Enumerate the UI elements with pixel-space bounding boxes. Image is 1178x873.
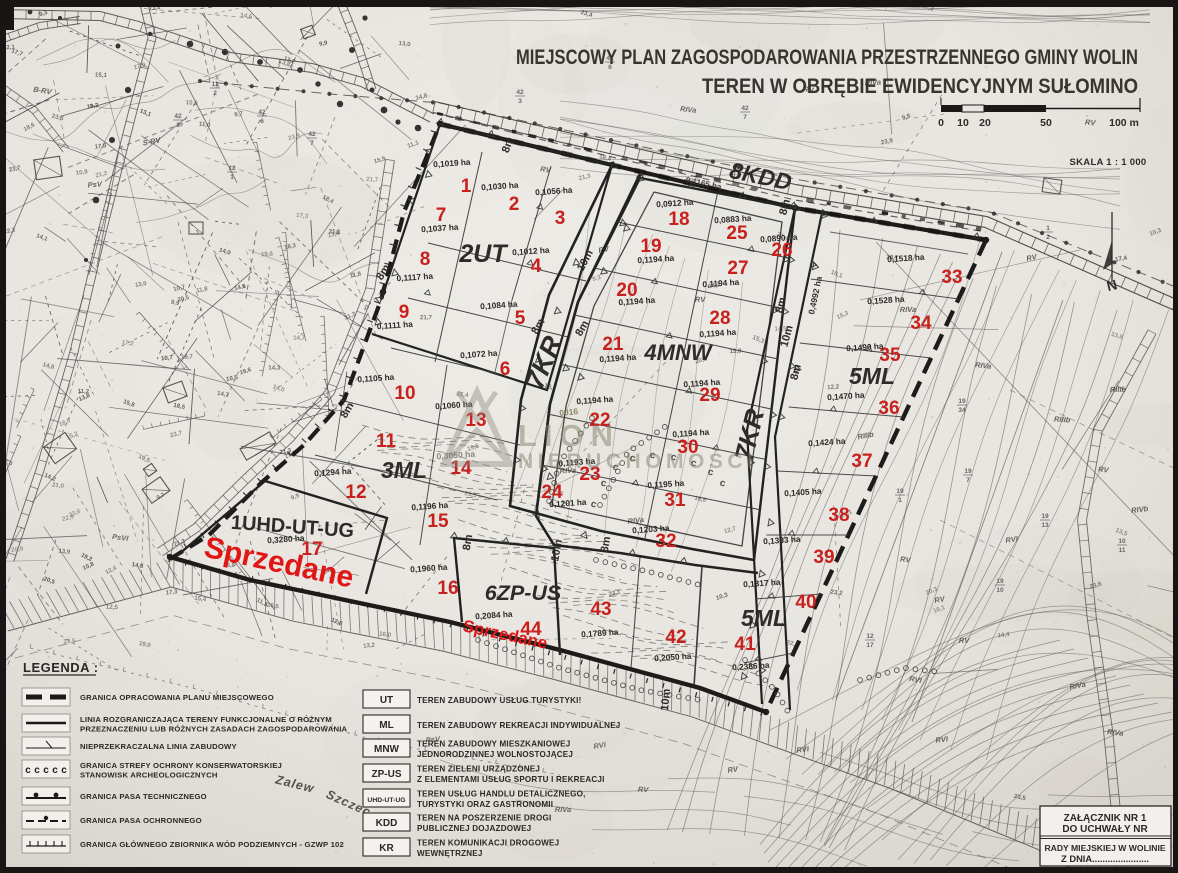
svg-text:NIERUCHOMOŚCI: NIERUCHOMOŚCI	[518, 449, 757, 473]
svg-text:LINIA ROZGRANICZAJĄCA TERENY F: LINIA ROZGRANICZAJĄCA TERENY FUNKCJONALN…	[80, 715, 332, 724]
svg-text:SKALA 1 : 1 000: SKALA 1 : 1 000	[1069, 157, 1146, 168]
svg-text:Z ELEMENTAMI USŁUG SPORTU I RE: Z ELEMENTAMI USŁUG SPORTU I REKREACJI	[417, 775, 605, 784]
svg-text:42: 42	[308, 131, 316, 138]
svg-text:0: 0	[938, 117, 944, 129]
svg-text:3: 3	[176, 122, 180, 129]
svg-text:37: 37	[851, 451, 872, 472]
svg-text:c: c	[61, 765, 67, 776]
svg-text:ZP-US: ZP-US	[372, 769, 402, 780]
svg-text:12: 12	[345, 482, 366, 503]
svg-text:18,7: 18,7	[181, 354, 194, 360]
svg-text:MIEJSCOWY PLAN ZAGOSPODAROWANI: MIEJSCOWY PLAN ZAGOSPODAROWANIA PRZESTRZ…	[516, 45, 1138, 69]
svg-text:1: 1	[461, 176, 472, 197]
svg-text:13,2: 13,2	[363, 643, 376, 650]
svg-text:TEREN ZABUDOWY MIESZKANIOWEJ: TEREN ZABUDOWY MIESZKANIOWEJ	[417, 740, 570, 749]
svg-text:2: 2	[509, 194, 520, 215]
svg-text:42: 42	[174, 113, 182, 120]
svg-text:LION: LION	[518, 418, 620, 453]
svg-text:15,1: 15,1	[95, 71, 108, 79]
svg-text:25: 25	[726, 223, 748, 244]
svg-text:11,2: 11,2	[78, 389, 90, 395]
svg-text:40: 40	[795, 592, 816, 613]
svg-text:4MNW: 4MNW	[643, 340, 713, 365]
svg-text:GRANICA STREFY OCHRONY KONSERW: GRANICA STREFY OCHRONY KONSERWATORSKIEJ	[80, 761, 282, 770]
svg-text:3ML: 3ML	[381, 457, 427, 483]
svg-text:TEREN USŁUG HANDLU DETALICZNEG: TEREN USŁUG HANDLU DETALICZNEGO,	[417, 790, 586, 799]
svg-text:33: 33	[941, 267, 962, 288]
svg-text:14,7: 14,7	[293, 335, 306, 342]
svg-text:6: 6	[500, 359, 511, 380]
svg-text:36: 36	[878, 398, 899, 419]
svg-text:10: 10	[957, 117, 969, 129]
svg-text:TEREN NA POSZERZENIE DROGI: TEREN NA POSZERZENIE DROGI	[417, 814, 551, 823]
svg-text:34: 34	[910, 313, 932, 334]
svg-text:KR: KR	[379, 843, 394, 854]
svg-text:39: 39	[813, 547, 834, 568]
svg-text:42: 42	[258, 109, 266, 116]
svg-text:21,7: 21,7	[420, 314, 433, 321]
svg-text:16: 16	[437, 578, 458, 599]
svg-text:GRANICA GŁÓWNEGO ZBIORNIKA WÓD: GRANICA GŁÓWNEGO ZBIORNIKA WÓD PODZIEMNY…	[80, 840, 344, 849]
svg-text:ZAŁĄCZNIK NR 1: ZAŁĄCZNIK NR 1	[1064, 813, 1147, 824]
svg-text:19: 19	[958, 398, 966, 405]
svg-text:DO UCHWAŁY NR: DO UCHWAŁY NR	[1062, 824, 1148, 835]
svg-text:GRANICA PASA TECHNICZNEGO: GRANICA PASA TECHNICZNEGO	[80, 792, 207, 801]
svg-text:19: 19	[964, 468, 972, 475]
svg-text:WEWNĘTRZNEJ: WEWNĘTRZNEJ	[417, 849, 483, 858]
svg-text:11: 11	[376, 431, 397, 452]
svg-text:1: 1	[1046, 225, 1050, 232]
svg-text:PsV: PsV	[87, 179, 103, 189]
svg-text:12: 12	[866, 633, 874, 640]
svg-text:3: 3	[555, 208, 566, 229]
svg-text:5ML: 5ML	[741, 605, 787, 631]
svg-text:ML: ML	[379, 720, 393, 731]
svg-text:TEREN ZIELENI URZĄDZONEJ: TEREN ZIELENI URZĄDZONEJ	[417, 765, 540, 774]
svg-text:UHD-UT-UG: UHD-UT-UG	[367, 797, 405, 804]
svg-text:10m: 10m	[659, 688, 673, 711]
svg-text:RV: RV	[959, 636, 971, 645]
svg-text:MNW: MNW	[374, 744, 400, 755]
svg-text:17,2: 17,2	[121, 339, 134, 347]
svg-text:6: 6	[260, 118, 264, 125]
svg-text:41: 41	[734, 634, 756, 655]
svg-text:c: c	[43, 765, 49, 776]
svg-text:18: 18	[668, 209, 689, 230]
svg-text:TEREN KOMUNIKACJI DROGOWEJ: TEREN KOMUNIKACJI DROGOWEJ	[417, 839, 559, 848]
svg-text:43: 43	[590, 599, 611, 620]
svg-text:50: 50	[1040, 117, 1052, 129]
svg-text:8: 8	[420, 249, 431, 270]
svg-text:29: 29	[699, 385, 720, 406]
svg-text:17: 17	[866, 642, 874, 649]
svg-text:0016: 0016	[559, 406, 579, 418]
svg-text:LEGENDA :: LEGENDA :	[23, 660, 99, 675]
svg-text:TEREN ZABUDOWY REKREACJI IND: TEREN ZABUDOWY REKREACJI INDYWIDUALNEJ	[417, 721, 621, 730]
svg-text:PRZEZNACZENIU LUB RÓŻNYCH ZASA: PRZEZNACZENIU LUB RÓŻNYCH ZASADACH ZAGOS…	[80, 725, 348, 734]
svg-text:GRANICA OPRACOWANIA PLANU MIEJ: GRANICA OPRACOWANIA PLANU MIEJSCOWEGO	[80, 693, 274, 702]
svg-text:STANOWISK ARCHEOLOGICZNYCH: STANOWISK ARCHEOLOGICZNYCH	[80, 771, 218, 780]
svg-text:c: c	[34, 765, 40, 776]
svg-text:5: 5	[515, 308, 526, 329]
svg-text:12,5: 12,5	[106, 604, 119, 611]
svg-text:5ML: 5ML	[849, 363, 895, 389]
svg-text:RVI: RVI	[796, 744, 810, 755]
svg-text:Z DNIA......................: Z DNIA......................	[1061, 854, 1149, 864]
svg-text:100 m: 100 m	[1109, 117, 1139, 129]
svg-text:TURYSTYKI ORAZ GASTRONOMII: TURYSTYKI ORAZ GASTRONOMII	[417, 800, 553, 809]
svg-text:RV: RV	[1085, 118, 1097, 128]
svg-text:RADY MIEJSKIEJ W WOLINIE: RADY MIEJSKIEJ W WOLINIE	[1044, 843, 1165, 853]
svg-text:10: 10	[1118, 538, 1126, 545]
svg-text:31: 31	[664, 490, 686, 511]
svg-text:2UT: 2UT	[458, 240, 509, 268]
svg-text:19: 19	[1041, 513, 1049, 520]
svg-text:4: 4	[531, 256, 542, 277]
svg-text:42: 42	[665, 627, 686, 648]
svg-text:11: 11	[212, 81, 219, 88]
svg-text:12,2: 12,2	[827, 383, 840, 391]
svg-text:15: 15	[427, 511, 449, 532]
svg-text:TEREN W OBRĘBIE EWIDENCYJNYM S: TEREN W OBRĘBIE EWIDENCYJNYM SUŁOMINO	[702, 74, 1138, 98]
svg-text:13,0: 13,0	[398, 40, 411, 48]
svg-text:6ZP-US: 6ZP-US	[485, 581, 562, 605]
svg-text:20: 20	[979, 117, 991, 129]
svg-text:38: 38	[828, 505, 849, 526]
svg-text:JEDNORODZINNEJ WOLNOSTOJĄCEJ: JEDNORODZINNEJ WOLNOSTOJĄCEJ	[417, 750, 573, 759]
svg-text:PUBLICZNEJ DOJAZDOWEJ: PUBLICZNEJ DOJAZDOWEJ	[417, 824, 531, 833]
svg-text:7: 7	[310, 140, 314, 147]
svg-text:GRANICA PASA OCHRONNEGO: GRANICA PASA OCHRONNEGO	[80, 816, 202, 825]
svg-text:c: c	[25, 765, 31, 776]
svg-text:16,0: 16,0	[379, 631, 392, 639]
svg-text:10: 10	[394, 383, 415, 404]
svg-text:NIEPRZEKRACZALNA LINIA ZABUD: NIEPRZEKRACZALNA LINIA ZABUDOWY	[80, 742, 237, 751]
svg-text:UT: UT	[380, 695, 393, 706]
svg-text:KDD: KDD	[376, 818, 398, 829]
svg-text:32: 32	[655, 531, 676, 552]
svg-text:TEREN ZABUDOWY USŁUG TURYST: TEREN ZABUDOWY USŁUG TURYSTYKI!	[417, 696, 581, 705]
svg-text:28: 28	[709, 308, 730, 329]
svg-text:c: c	[52, 765, 58, 776]
